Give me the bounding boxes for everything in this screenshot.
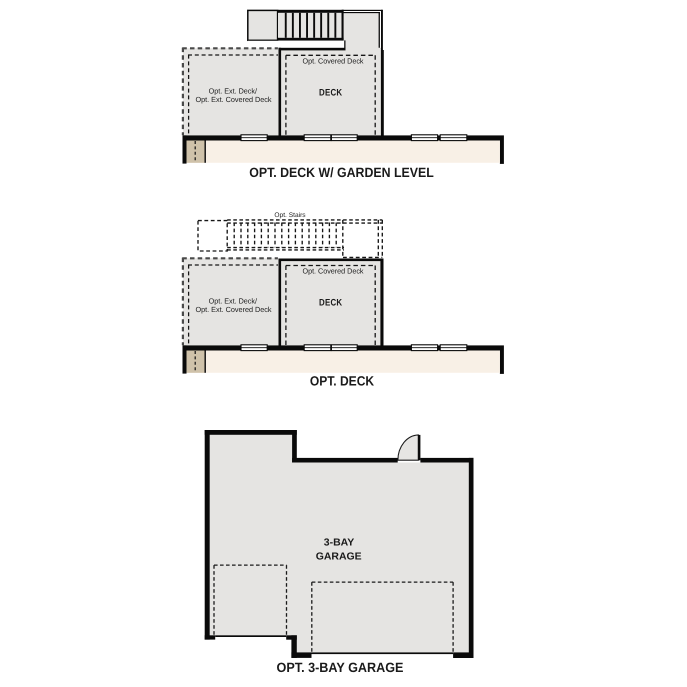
svg-text:Opt. Stairs: Opt. Stairs	[274, 212, 306, 219]
svg-text:3-BAY: 3-BAY	[324, 538, 355, 549]
svg-text:Opt. Ext. Covered Deck: Opt. Ext. Covered Deck	[196, 95, 272, 104]
svg-text:Opt. Ext. Covered Deck: Opt. Ext. Covered Deck	[196, 305, 272, 314]
svg-text:OPT. DECK: OPT. DECK	[310, 373, 374, 388]
svg-text:GARAGE: GARAGE	[316, 552, 362, 563]
svg-text:Opt. Covered Deck: Opt. Covered Deck	[303, 266, 364, 275]
svg-text:OPT. 3-BAY GARAGE: OPT. 3-BAY GARAGE	[277, 660, 404, 675]
svg-text:OPT. DECK W/ GARDEN LEVEL: OPT. DECK W/ GARDEN LEVEL	[249, 165, 434, 180]
svg-text:DECK: DECK	[319, 88, 342, 99]
svg-text:Opt. Covered Deck: Opt. Covered Deck	[303, 56, 364, 65]
svg-text:DECK: DECK	[319, 298, 342, 309]
